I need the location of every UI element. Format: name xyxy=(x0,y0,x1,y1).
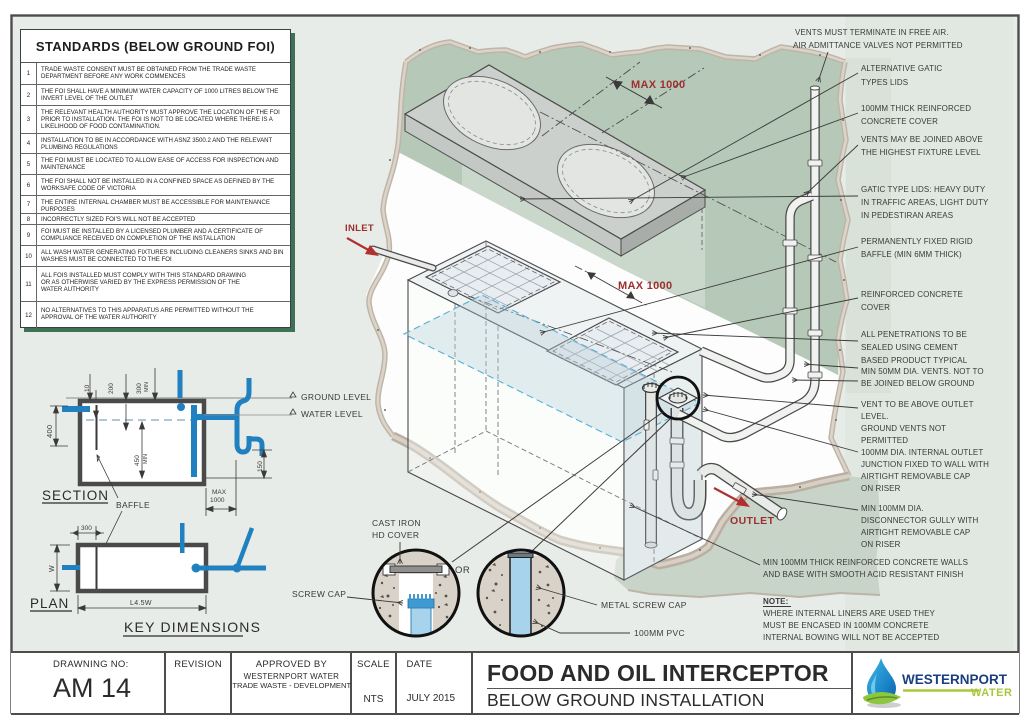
svg-text:HD COVER: HD COVER xyxy=(372,530,419,540)
svg-text:IN TRAFFIC AREAS, LIGHT DUTY: IN TRAFFIC AREAS, LIGHT DUTY xyxy=(861,198,989,207)
svg-text:WATER LEVEL: WATER LEVEL xyxy=(301,409,363,419)
svg-text:BAFFLE: BAFFLE xyxy=(116,500,150,510)
svg-text:LEVEL.: LEVEL. xyxy=(861,412,889,421)
svg-text:BASED PRODUCT TYPICAL: BASED PRODUCT TYPICAL xyxy=(861,356,968,365)
svg-text:COVER: COVER xyxy=(861,303,890,312)
svg-text:ALL PENETRATIONS TO BE: ALL PENETRATIONS TO BE xyxy=(861,330,967,339)
svg-text:SECTION: SECTION xyxy=(42,488,109,503)
svg-text:NOTE:: NOTE: xyxy=(763,597,788,606)
svg-text:WESTERNPORT: WESTERNPORT xyxy=(902,672,1008,687)
svg-text:MAX: MAX xyxy=(212,489,227,496)
svg-text:MAX 1000: MAX 1000 xyxy=(631,79,685,91)
svg-text:L4.5W: L4.5W xyxy=(130,600,152,607)
svg-text:WATER: WATER xyxy=(971,687,1012,699)
svg-text:PLAN: PLAN xyxy=(30,596,69,611)
svg-text:CAST IRON: CAST IRON xyxy=(372,518,421,528)
svg-text:VENTS MAY BE JOINED ABOVE: VENTS MAY BE JOINED ABOVE xyxy=(861,135,983,144)
svg-text:KEY DIMENSIONS: KEY DIMENSIONS xyxy=(124,619,261,635)
svg-text:SCREW CAP: SCREW CAP xyxy=(292,589,346,599)
svg-text:200: 200 xyxy=(108,383,115,394)
svg-text:ON RISER: ON RISER xyxy=(861,484,901,493)
svg-text:400: 400 xyxy=(45,425,54,438)
svg-text:METAL SCREW CAP: METAL SCREW CAP xyxy=(601,600,687,610)
svg-text:ALTERNATIVE GATIC: ALTERNATIVE GATIC xyxy=(861,64,942,73)
svg-text:300: 300 xyxy=(81,525,92,532)
svg-text:MAX 1000: MAX 1000 xyxy=(618,280,672,292)
svg-text:WHERE INTERNAL LINERS ARE USED: WHERE INTERNAL LINERS ARE USED THEY xyxy=(763,609,936,618)
svg-text:IN PEDESTIRAN AREAS: IN PEDESTIRAN AREAS xyxy=(861,211,953,220)
svg-text:100MM THICK REINFORCED: 100MM THICK REINFORCED xyxy=(861,104,971,113)
svg-text:10: 10 xyxy=(84,384,91,392)
svg-text:AIR ADMITTANCE VALVES NOT PERM: AIR ADMITTANCE VALVES NOT PERMITTED xyxy=(793,41,963,50)
svg-text:REINFORCED CONCRETE: REINFORCED CONCRETE xyxy=(861,290,963,299)
svg-text:100MM DIA. INTERNAL OUTLET: 100MM DIA. INTERNAL OUTLET xyxy=(861,448,983,457)
svg-text:VENT TO BE ABOVE OUTLET: VENT TO BE ABOVE OUTLET xyxy=(861,400,974,409)
svg-text:OUTLET: OUTLET xyxy=(730,515,775,527)
svg-text:VENTS MUST TERMINATE IN FREE A: VENTS MUST TERMINATE IN FREE AIR. xyxy=(795,28,949,37)
svg-text:BE JOINED BELOW GROUND: BE JOINED BELOW GROUND xyxy=(861,379,974,388)
svg-text:W: W xyxy=(49,565,56,572)
svg-text:TYPES LIDS: TYPES LIDS xyxy=(861,78,908,87)
svg-text:MIN 100MM THICK REINFORCED CON: MIN 100MM THICK REINFORCED CONCRETE WALL… xyxy=(763,558,968,567)
svg-text:INTERNAL BOWING WILL NOT BE AC: INTERNAL BOWING WILL NOT BE ACCEPTED xyxy=(763,633,939,642)
svg-text:SEALED USING CEMENT: SEALED USING CEMENT xyxy=(861,343,958,352)
svg-text:AIRTIGHT REMOVABLE CAP: AIRTIGHT REMOVABLE CAP xyxy=(861,528,970,537)
svg-text:GROUND VENTS NOT: GROUND VENTS NOT xyxy=(861,424,946,433)
svg-text:PERMANENTLY FIXED RIGID: PERMANENTLY FIXED RIGID xyxy=(861,237,973,246)
svg-text:OR: OR xyxy=(455,565,470,576)
svg-text:THE HIGHEST FIXTURE LEVEL: THE HIGHEST FIXTURE LEVEL xyxy=(861,148,981,157)
svg-text:DISCONNECTOR GULLY WITH: DISCONNECTOR GULLY WITH xyxy=(861,516,979,525)
svg-text:MIN 50MM DIA. VENTS. NOT TO: MIN 50MM DIA. VENTS. NOT TO xyxy=(861,367,984,376)
svg-text:AIRTIGHT REMOVABLE CAP: AIRTIGHT REMOVABLE CAP xyxy=(861,472,970,481)
svg-text:AND BASE WITH SMOOTH ACID RESI: AND BASE WITH SMOOTH ACID RESISTANT FINI… xyxy=(763,570,963,579)
svg-text:450: 450 xyxy=(134,455,141,466)
svg-text:INLET: INLET xyxy=(345,223,374,234)
svg-text:150: 150 xyxy=(257,461,264,472)
svg-text:GROUND LEVEL: GROUND LEVEL xyxy=(301,392,371,402)
svg-text:GATIC TYPE LIDS: HEAVY DUTY: GATIC TYPE LIDS: HEAVY DUTY xyxy=(861,185,986,194)
svg-text:MIN: MIN xyxy=(143,454,149,464)
svg-text:CONCRETE COVER: CONCRETE COVER xyxy=(861,117,938,126)
svg-text:JUNCTION FIXED TO WALL WITH: JUNCTION FIXED TO WALL WITH xyxy=(861,460,989,469)
svg-text:100MM PVC: 100MM PVC xyxy=(634,628,685,638)
svg-text:1000: 1000 xyxy=(210,497,225,504)
svg-text:BAFFLE (MIN 6MM THICK): BAFFLE (MIN 6MM THICK) xyxy=(861,250,962,259)
svg-text:MIN 100MM DIA.: MIN 100MM DIA. xyxy=(861,504,924,513)
svg-text:ON RISER: ON RISER xyxy=(861,540,901,549)
svg-text:300: 300 xyxy=(136,383,143,394)
svg-text:MIN: MIN xyxy=(144,382,150,392)
svg-text:MUST BE ENCASED IN 100MM CONCR: MUST BE ENCASED IN 100MM CONCRETE xyxy=(763,621,929,630)
svg-text:PERMITTED: PERMITTED xyxy=(861,436,908,445)
